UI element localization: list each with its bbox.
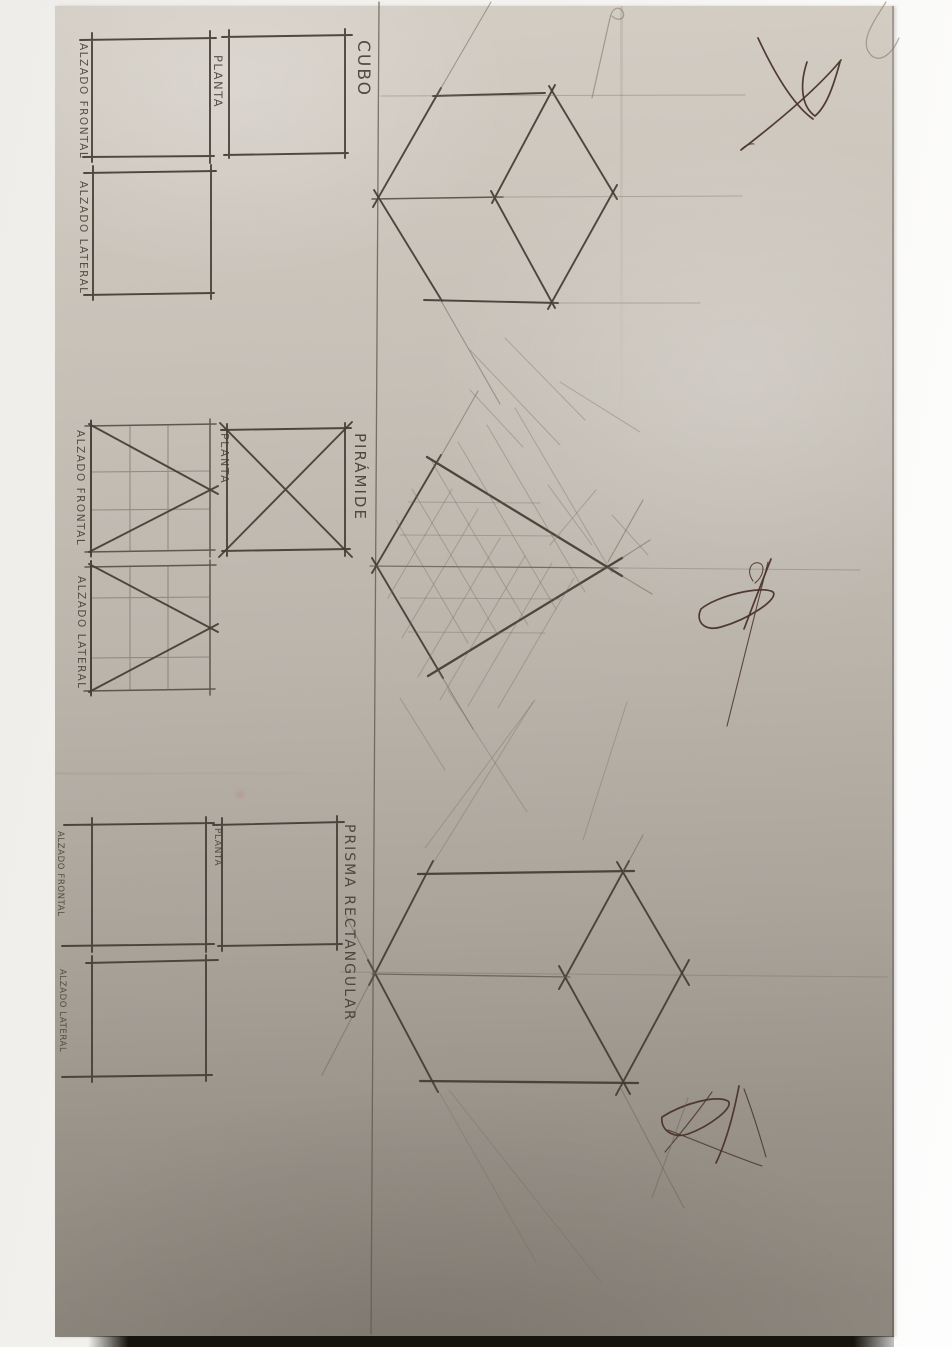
cubo-label-alzado-frontal: ALZADO FRONTAL bbox=[77, 43, 89, 159]
piramide-section-title: PIRÁMIDE bbox=[351, 433, 368, 521]
piramide-isometric-drawing bbox=[370, 338, 860, 848]
cubo-label-planta: PLANTA bbox=[211, 55, 224, 108]
signature-bottom-right bbox=[652, 1086, 766, 1198]
prisma-label-planta: PLANTA bbox=[212, 828, 222, 866]
photo-bottom-edge bbox=[88, 1336, 894, 1347]
piramide-label-alzado-lateral: ALZADO LATERAL bbox=[75, 576, 87, 690]
cubo-section-title: CUBO bbox=[352, 40, 372, 97]
prisma-section-title: PRISMA RECTANGULAR bbox=[341, 824, 357, 1022]
prisma-isometric-drawing bbox=[322, 702, 888, 1282]
prisma-label-alzado-lateral: ALZADO LATERAL bbox=[56, 969, 66, 1052]
cubo-label-alzado-lateral: ALZADO LATERAL bbox=[77, 181, 89, 295]
prisma-orthographic-views bbox=[62, 816, 344, 1082]
cubo-isometric-drawing bbox=[372, 2, 745, 404]
prisma-label-alzado-frontal: ALZADO FRONTAL bbox=[54, 831, 64, 916]
piramide-label-planta: PLANTA bbox=[217, 433, 230, 484]
photo-stage: CUBO ALZADO FRONTAL PLANTA ALZADO LATERA… bbox=[0, 0, 952, 1347]
signature-top-right bbox=[592, 2, 899, 150]
signature-middle-right bbox=[699, 559, 774, 726]
piramide-label-alzado-frontal: ALZADO FRONTAL bbox=[74, 430, 86, 546]
pencil-drawing-layer bbox=[0, 0, 952, 1347]
